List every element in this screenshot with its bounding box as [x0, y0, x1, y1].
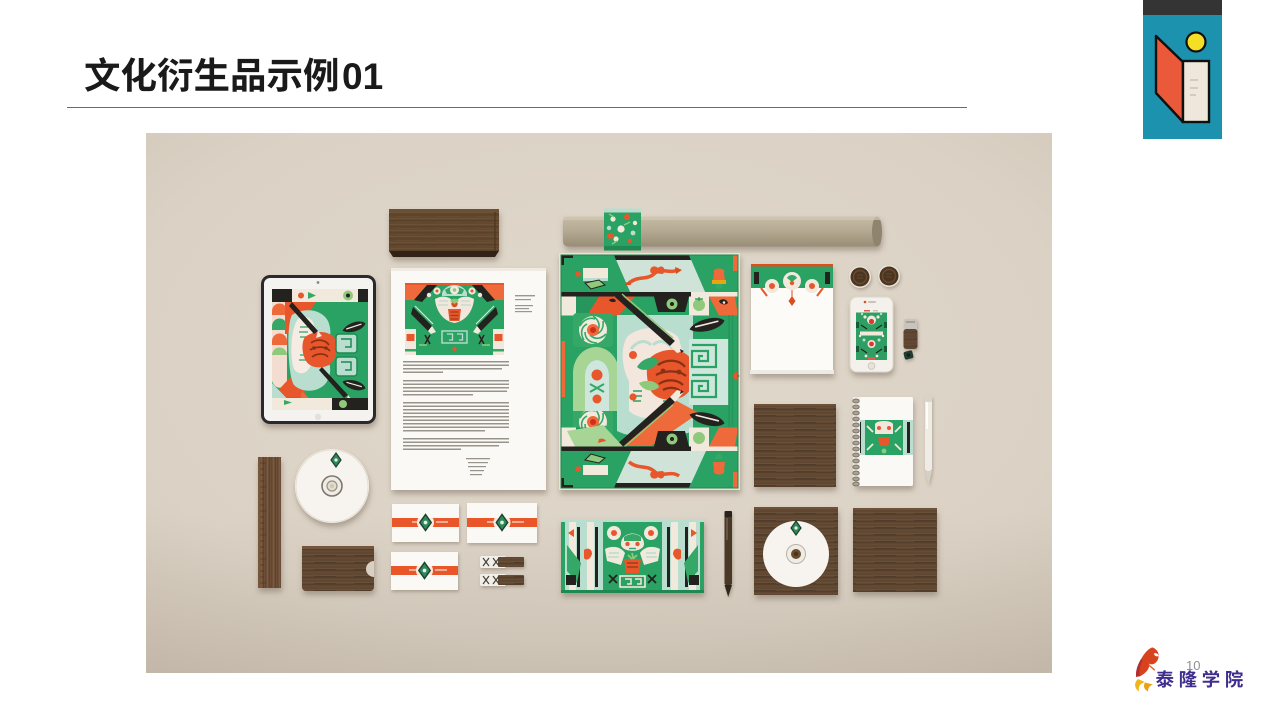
svg-text:01: 01	[342, 56, 383, 97]
